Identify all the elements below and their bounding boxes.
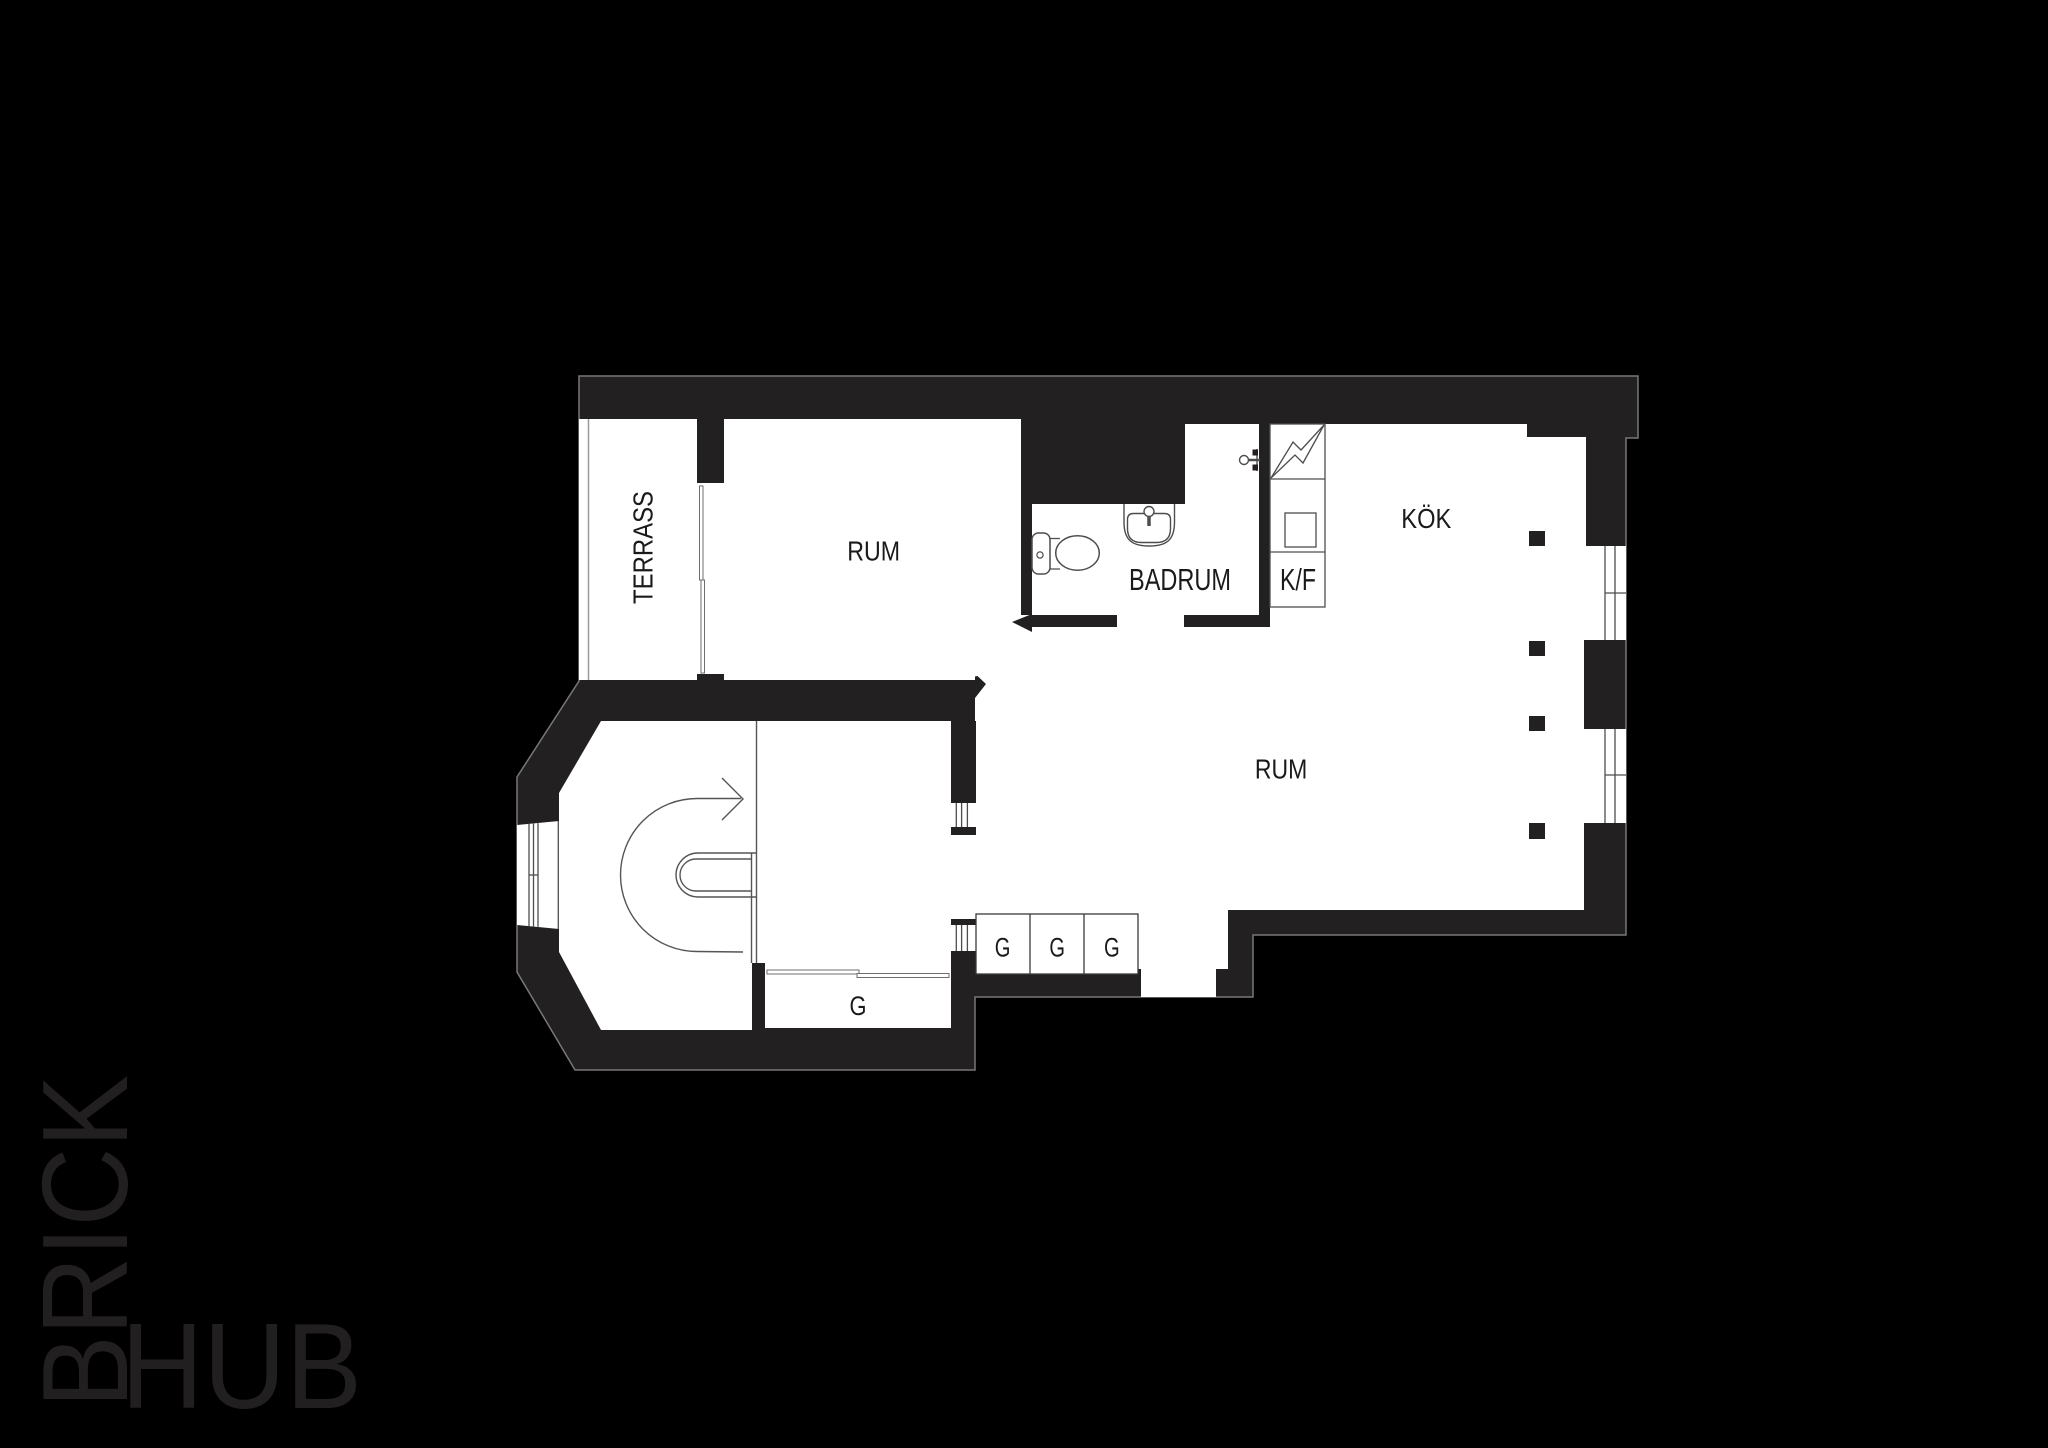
svg-text:G: G [1104,932,1120,962]
svg-text:RUM: RUM [847,536,900,567]
svg-text:BADRUM: BADRUM [1129,563,1231,597]
svg-text:TERRASS: TERRASS [628,491,659,604]
svg-text:G: G [995,932,1011,962]
svg-text:RUM: RUM [1255,753,1307,784]
svg-text:K/F: K/F [1280,563,1316,597]
svg-text:G: G [1049,932,1065,962]
svg-text:HUB: HUB [121,1298,362,1434]
svg-text:KÖK: KÖK [1401,503,1452,534]
svg-text:G: G [850,991,867,1021]
